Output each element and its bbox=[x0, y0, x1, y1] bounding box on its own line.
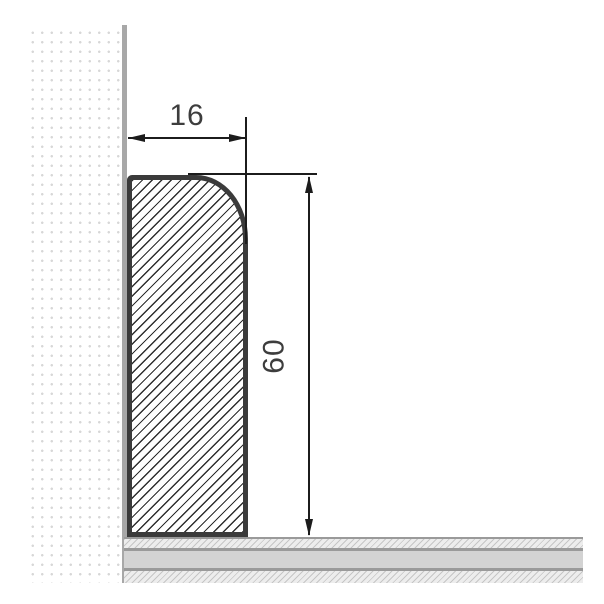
arrow-down-icon bbox=[305, 519, 313, 536]
wall-cross-section bbox=[25, 25, 127, 583]
height-dimension-line bbox=[308, 177, 310, 535]
arrow-right-icon bbox=[229, 134, 246, 142]
floor-layer-solid bbox=[124, 551, 583, 568]
arrow-up-icon bbox=[305, 176, 313, 193]
width-dimension-label: 16 bbox=[128, 101, 246, 131]
technical-drawing-canvas: 16 60 bbox=[0, 0, 604, 604]
height-dimension-label: 60 bbox=[260, 338, 290, 373]
floor-layer-hatch-bottom bbox=[124, 571, 583, 583]
arrow-left-icon bbox=[128, 134, 145, 142]
height-dimension-label-box: 60 bbox=[247, 176, 303, 536]
floor-cross-section bbox=[124, 537, 583, 583]
skirting-board-profile bbox=[127, 175, 248, 537]
height-extension-line bbox=[188, 173, 317, 175]
floor-layer-hatch-top bbox=[124, 539, 583, 548]
